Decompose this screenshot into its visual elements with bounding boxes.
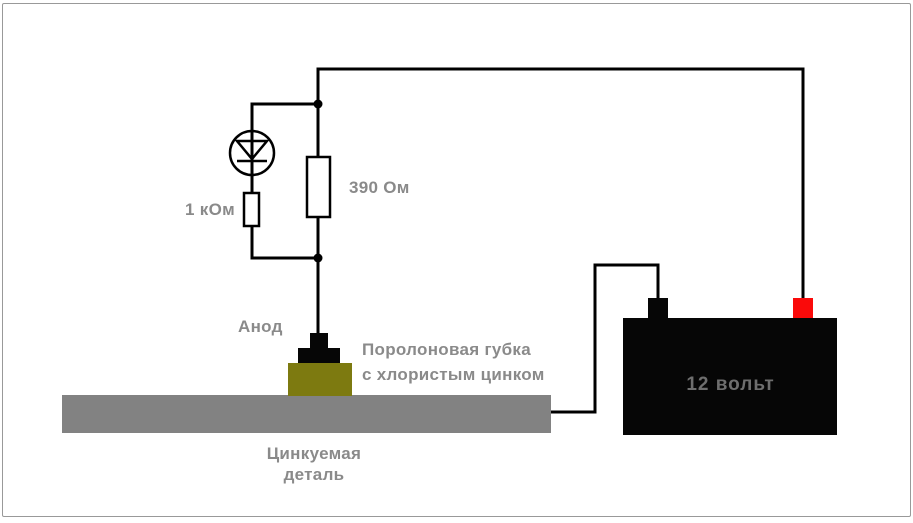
battery-terminal-negative <box>648 298 668 318</box>
label-anode: Анод <box>238 314 283 339</box>
label-workpiece-line1: Цинкуемая <box>214 443 414 464</box>
junction-dot-bottom <box>314 254 323 263</box>
resistor-1-kohm <box>244 193 259 226</box>
label-workpiece-line2: деталь <box>214 464 414 485</box>
workpiece-plate <box>62 395 551 433</box>
battery-terminal-positive <box>793 298 813 318</box>
label-sponge: Поролоновая губка с хлористым цинком <box>362 337 545 387</box>
circuit-canvas <box>0 0 913 523</box>
anode-contact <box>298 333 340 363</box>
label-sponge-line1: Поролоновая губка <box>362 337 545 362</box>
label-resistor-390ohm: 390 Ом <box>349 175 410 200</box>
label-battery-voltage: 12 вольт <box>623 374 838 396</box>
junction-dot-top <box>314 100 323 109</box>
label-resistor-1kohm: 1 кОм <box>155 197 235 222</box>
electroplating-circuit-diagram: 1 кОм 390 Ом Анод Поролоновая губка с хл… <box>0 0 913 523</box>
label-sponge-line2: с хлористым цинком <box>362 362 545 387</box>
sponge-electrode <box>288 363 352 396</box>
label-workpiece: Цинкуемая деталь <box>214 443 414 485</box>
resistor-390-ohm <box>307 157 330 217</box>
